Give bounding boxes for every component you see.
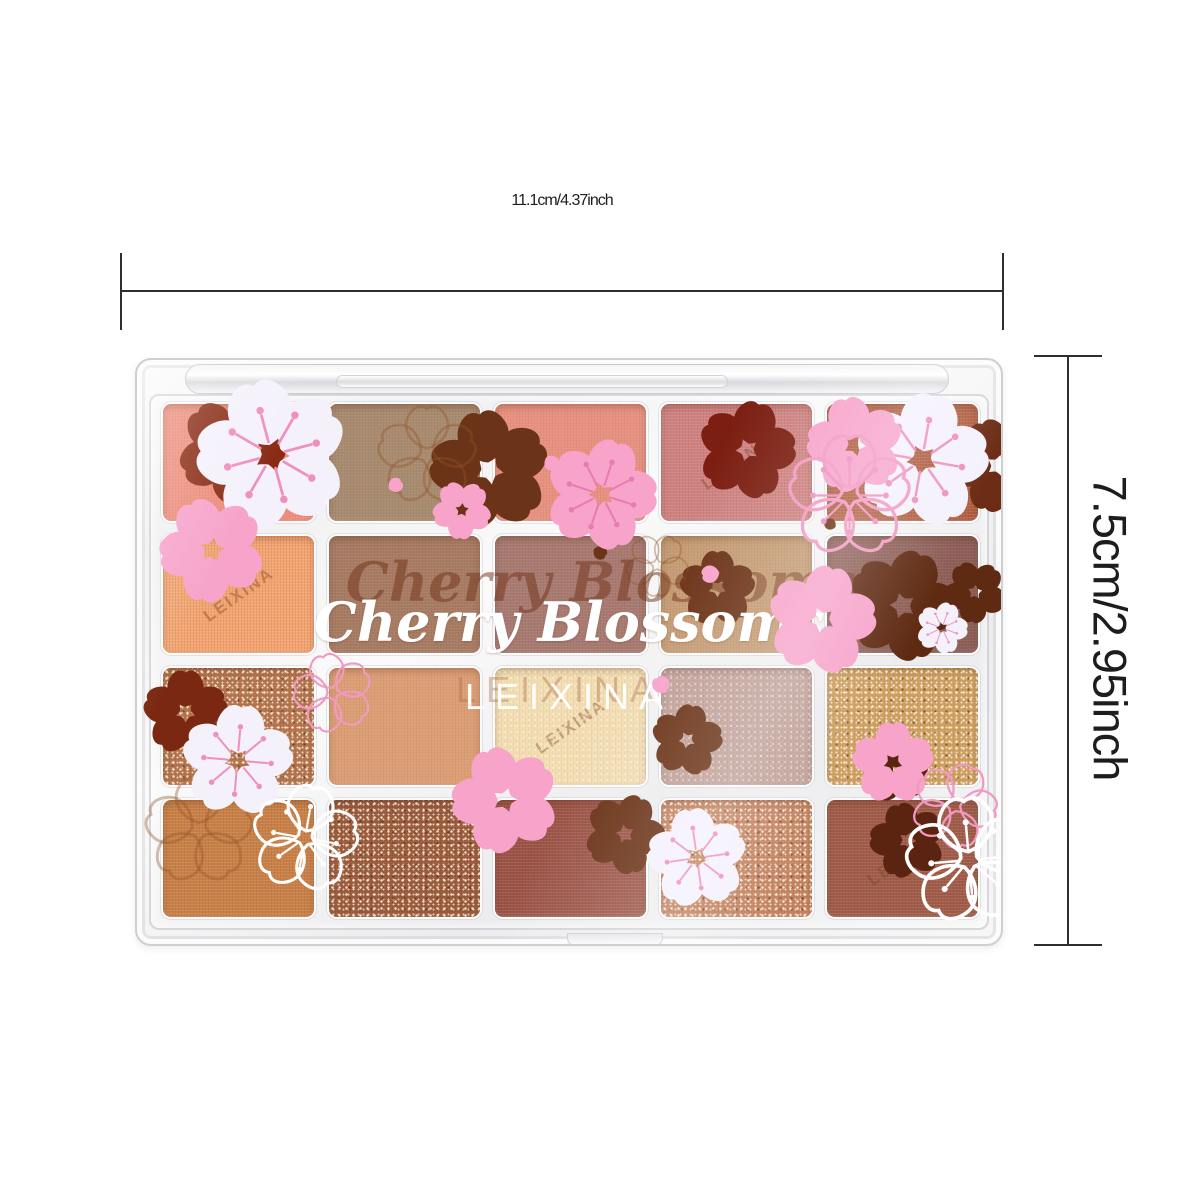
brand-name-text: LEIXINA bbox=[465, 676, 673, 718]
product-photo: 11.1cm/4.37inch 7.5cm/2.95inch LEIXINALE… bbox=[0, 0, 1200, 1200]
eyeshadow-palette: LEIXINALEIXINALEIXINALEIXINA Cherry Blos… bbox=[135, 358, 1003, 946]
collection-script-text: Cherry Blossoms bbox=[314, 590, 824, 654]
brand-print-area: Cherry Blossoms Cherry Blossoms LEIXINA bbox=[137, 360, 1001, 944]
height-dimension-line bbox=[1067, 355, 1069, 946]
width-dimension-line bbox=[120, 290, 1004, 292]
width-dimension-label: 11.1cm/4.37inch bbox=[120, 192, 1004, 210]
height-dimension-label: 7.5cm/2.95inch bbox=[1083, 476, 1138, 781]
